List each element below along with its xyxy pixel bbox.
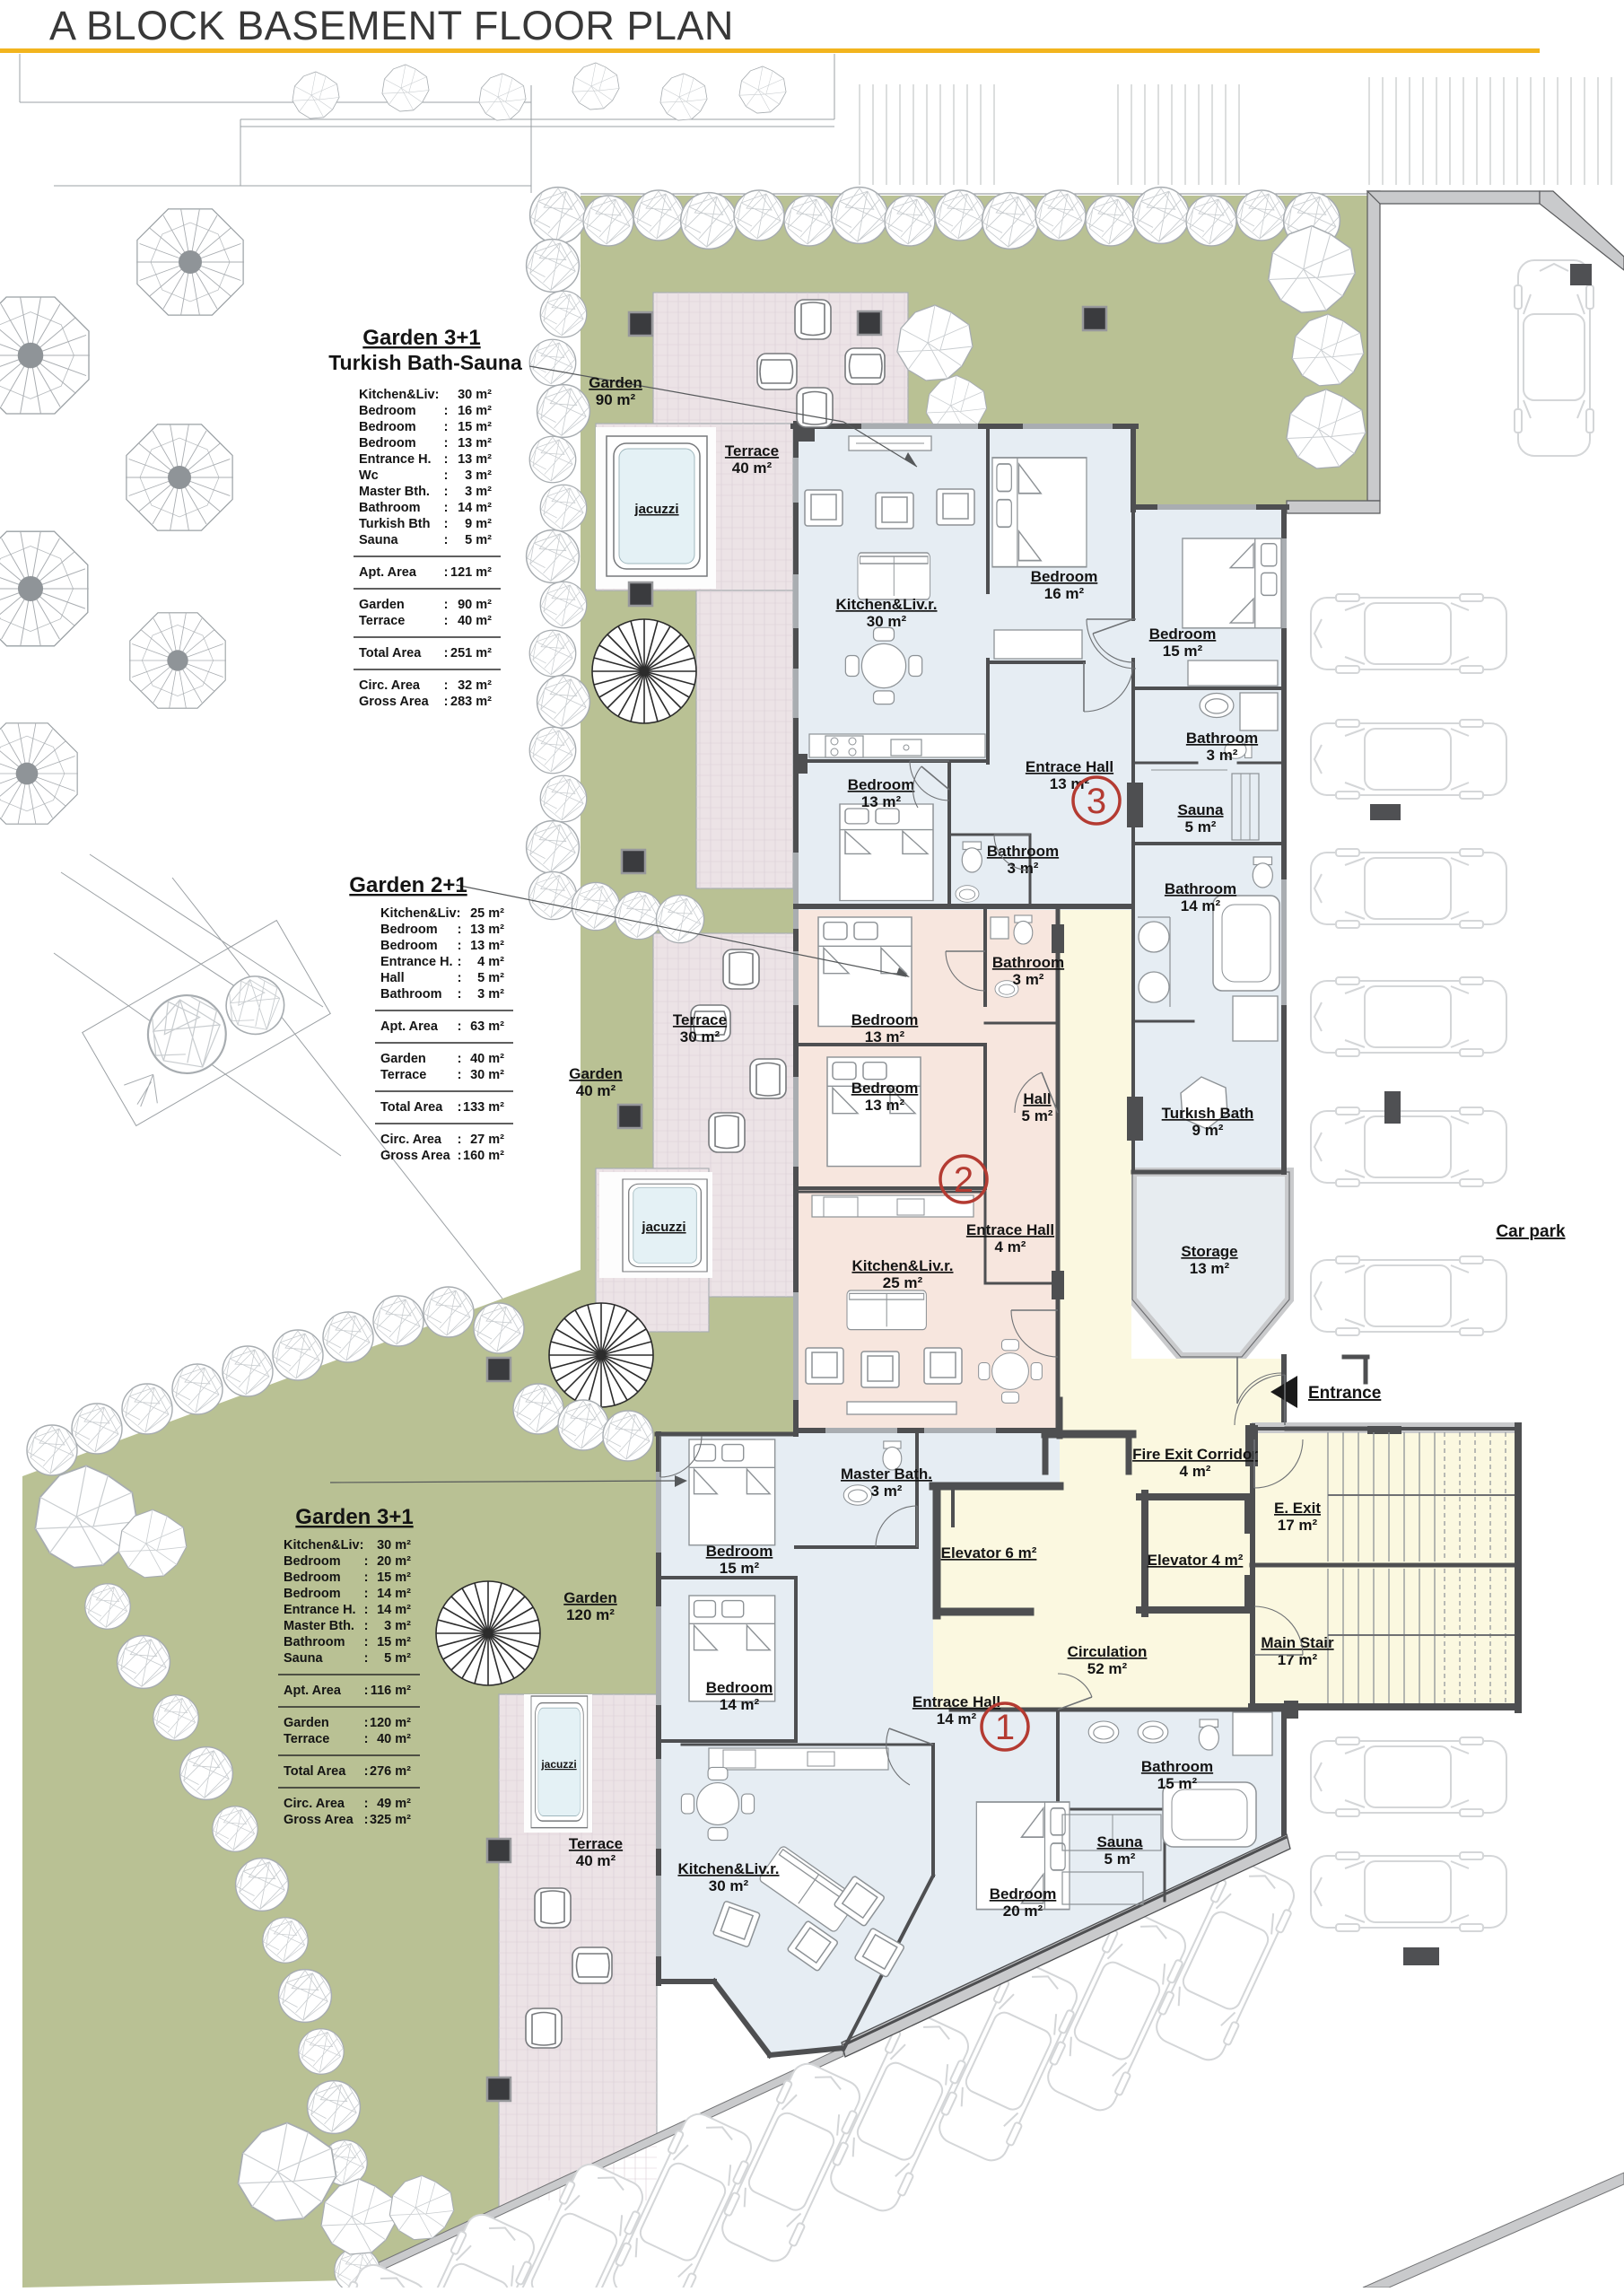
svg-text:Bathroom: Bathroom <box>380 987 441 1002</box>
svg-text::: : <box>364 1635 369 1649</box>
svg-text::: : <box>458 1052 462 1066</box>
svg-text:Bedroom: Bedroom <box>380 939 438 953</box>
svg-text:Garden 3+1: Garden 3+1 <box>295 1505 413 1529</box>
svg-text::: : <box>444 436 449 451</box>
svg-text:5 m²: 5 m² <box>477 971 504 985</box>
svg-text:Garden: Garden <box>563 1589 617 1606</box>
svg-text::: : <box>444 501 449 515</box>
svg-text:Bathroom: Bathroom <box>284 1635 345 1649</box>
svg-text:Bathroom: Bathroom <box>359 501 420 515</box>
svg-text:17 m²: 17 m² <box>1278 1651 1318 1668</box>
svg-text:32 m²: 32 m² <box>458 678 492 693</box>
svg-text:Entrance H.: Entrance H. <box>359 452 432 467</box>
svg-text:Bedroom: Bedroom <box>284 1587 341 1601</box>
svg-text:Main Stair: Main Stair <box>1261 1634 1334 1651</box>
svg-text:A BLOCK BASEMENT FLOOR PLAN: A BLOCK BASEMENT FLOOR PLAN <box>49 3 734 48</box>
svg-text::: : <box>364 1764 369 1779</box>
svg-text::: : <box>364 1570 369 1585</box>
svg-text:3 m²: 3 m² <box>384 1619 411 1633</box>
svg-text:jacuzzi: jacuzzi <box>641 1220 685 1235</box>
svg-text:Kitchen&Liv.r.: Kitchen&Liv.r. <box>851 1257 953 1274</box>
svg-text:Terrace: Terrace <box>673 1011 727 1028</box>
svg-text:Kitchen&Liv.r.: Kitchen&Liv.r. <box>835 596 937 613</box>
svg-text::: : <box>364 1797 369 1811</box>
svg-text:15 m²: 15 m² <box>377 1635 411 1649</box>
svg-text:283 m²: 283 m² <box>450 695 492 709</box>
svg-text:13 m²: 13 m² <box>1050 775 1090 792</box>
svg-text:Total Area: Total Area <box>359 646 422 660</box>
svg-text:20 m²: 20 m² <box>1003 1903 1043 1920</box>
svg-text:5 m²: 5 m² <box>465 533 492 547</box>
svg-text:3 m²: 3 m² <box>477 987 504 1002</box>
svg-text:Terrace: Terrace <box>725 442 779 459</box>
svg-text:Bedroom: Bedroom <box>284 1570 341 1585</box>
svg-text:3 m²: 3 m² <box>1008 860 1039 877</box>
svg-text:30 m²: 30 m² <box>470 1068 504 1082</box>
svg-text:14 m²: 14 m² <box>720 1696 760 1713</box>
svg-text:13 m²: 13 m² <box>470 939 504 953</box>
svg-text::: : <box>444 485 449 499</box>
svg-text:4 m²: 4 m² <box>477 955 504 969</box>
svg-text:E. Exit: E. Exit <box>1274 1500 1321 1517</box>
svg-text:160 m²: 160 m² <box>463 1149 504 1163</box>
svg-text:15 m²: 15 m² <box>377 1570 411 1585</box>
svg-text:40 m²: 40 m² <box>458 614 492 628</box>
svg-text:63 m²: 63 m² <box>470 1019 504 1034</box>
svg-text:Sauna: Sauna <box>284 1651 323 1666</box>
svg-text:Kitchen&Liv:: Kitchen&Liv: <box>380 906 460 921</box>
svg-text:Terrace: Terrace <box>359 614 405 628</box>
svg-text::: : <box>364 1651 369 1666</box>
svg-text:Gross Area: Gross Area <box>380 1149 451 1163</box>
svg-text:3: 3 <box>1087 782 1106 821</box>
svg-text:276 m²: 276 m² <box>370 1764 411 1779</box>
svg-text:Terrace: Terrace <box>284 1732 329 1746</box>
svg-text:13 m²: 13 m² <box>861 793 902 810</box>
svg-text:13 m²: 13 m² <box>470 923 504 937</box>
svg-text:116 m²: 116 m² <box>371 1684 411 1698</box>
svg-text:Garden: Garden <box>284 1716 329 1730</box>
svg-text:Bathroom: Bathroom <box>992 954 1064 971</box>
svg-text:Turkısh Bath: Turkısh Bath <box>1162 1105 1254 1122</box>
svg-text:49 m²: 49 m² <box>377 1797 411 1811</box>
svg-text:3 m²: 3 m² <box>465 468 492 483</box>
svg-text:14 m²: 14 m² <box>937 1710 977 1728</box>
svg-text:16 m²: 16 m² <box>1044 585 1085 602</box>
svg-text:Apt. Area: Apt. Area <box>359 565 417 580</box>
svg-text:Bathroom: Bathroom <box>1165 880 1236 897</box>
svg-text:Bathroom: Bathroom <box>1141 1758 1213 1775</box>
svg-text:Total Area: Total Area <box>380 1100 443 1115</box>
svg-text::: : <box>458 1100 462 1115</box>
svg-text:Hall: Hall <box>1023 1090 1051 1107</box>
svg-text:Bedroom: Bedroom <box>990 1885 1057 1903</box>
svg-text:40 m²: 40 m² <box>576 1082 616 1099</box>
svg-text:325 m²: 325 m² <box>370 1813 411 1827</box>
svg-text:Garden: Garden <box>359 598 405 612</box>
svg-text:15 m²: 15 m² <box>720 1560 760 1577</box>
svg-text:17 m²: 17 m² <box>1278 1517 1318 1534</box>
svg-text:20 m²: 20 m² <box>377 1554 411 1569</box>
svg-text:Sauna: Sauna <box>359 533 398 547</box>
svg-text:120 m²: 120 m² <box>370 1716 411 1730</box>
svg-text:Elevator 6 m²: Elevator 6 m² <box>941 1544 1037 1562</box>
svg-text:9 m²: 9 m² <box>465 517 492 531</box>
svg-text:121 m²: 121 m² <box>450 565 492 580</box>
svg-text::: : <box>458 1068 462 1082</box>
svg-text::: : <box>364 1587 369 1601</box>
svg-text:15 m²: 15 m² <box>1157 1775 1198 1792</box>
svg-text::: : <box>444 695 449 709</box>
svg-text:27 m²: 27 m² <box>470 1133 504 1147</box>
svg-text:Terrace: Terrace <box>380 1068 426 1082</box>
svg-text:Bedroom: Bedroom <box>1031 568 1098 585</box>
svg-text:Apt. Area: Apt. Area <box>284 1684 342 1698</box>
svg-text:Gross Area: Gross Area <box>284 1813 354 1827</box>
svg-text:Gross Area: Gross Area <box>359 695 430 709</box>
svg-text:Car park: Car park <box>1496 1222 1566 1241</box>
svg-text::: : <box>364 1603 369 1617</box>
svg-text::: : <box>458 1149 462 1163</box>
svg-text:90 m²: 90 m² <box>596 391 636 408</box>
svg-text:Circulation: Circulation <box>1068 1643 1148 1660</box>
svg-text:Turkish Bath-Sauna: Turkish Bath-Sauna <box>328 351 522 374</box>
svg-text:Total Area: Total Area <box>284 1764 346 1779</box>
svg-text:15 m²: 15 m² <box>458 420 492 434</box>
svg-text:Circ. Area: Circ. Area <box>284 1797 345 1811</box>
svg-text::: : <box>444 420 449 434</box>
svg-text:Sauna: Sauna <box>1177 801 1224 818</box>
svg-text:Elevator 4 m²: Elevator 4 m² <box>1148 1552 1244 1569</box>
svg-text:Fire Exit Corridor: Fire Exit Corridor <box>1132 1446 1258 1463</box>
svg-text:Bedroom: Bedroom <box>851 1011 919 1028</box>
svg-text:251 m²: 251 m² <box>450 646 492 660</box>
svg-text:14 m²: 14 m² <box>1181 897 1221 914</box>
svg-text::: : <box>444 646 449 660</box>
svg-text::: : <box>458 987 462 1002</box>
svg-text:Bedroom: Bedroom <box>380 923 438 937</box>
svg-text:Sauna: Sauna <box>1096 1833 1143 1850</box>
svg-text:Bedroom: Bedroom <box>706 1543 773 1560</box>
svg-text:13 m²: 13 m² <box>458 436 492 451</box>
svg-text:30 m²: 30 m² <box>709 1877 749 1894</box>
svg-text:Entrance: Entrance <box>1308 1384 1381 1403</box>
svg-text:Bedroom: Bedroom <box>851 1080 919 1097</box>
svg-text:Garden: Garden <box>380 1052 426 1066</box>
svg-text:90 m²: 90 m² <box>458 598 492 612</box>
svg-text::: : <box>458 1019 462 1034</box>
svg-text::: : <box>364 1716 369 1730</box>
svg-text::: : <box>444 452 449 467</box>
svg-text:Circ. Area: Circ. Area <box>359 678 421 693</box>
svg-text:Kitchen&Liv:: Kitchen&Liv: <box>359 388 439 402</box>
svg-text:Bedroom: Bedroom <box>359 436 416 451</box>
svg-text:Storage: Storage <box>1181 1243 1237 1260</box>
svg-text:Entrace Hall: Entrace Hall <box>912 1693 1000 1710</box>
svg-text:Entrace Hall: Entrace Hall <box>1026 758 1113 775</box>
svg-text:40 m²: 40 m² <box>576 1852 616 1869</box>
svg-text::: : <box>444 468 449 483</box>
svg-text:3 m²: 3 m² <box>1207 747 1238 764</box>
svg-text:120 m²: 120 m² <box>566 1606 615 1623</box>
svg-text::: : <box>364 1684 369 1698</box>
svg-text:5 m²: 5 m² <box>1104 1850 1136 1868</box>
svg-text:40 m²: 40 m² <box>470 1052 504 1066</box>
svg-text::: : <box>364 1554 369 1569</box>
svg-text:Entrance H.: Entrance H. <box>284 1603 356 1617</box>
svg-text:40 m²: 40 m² <box>732 459 773 477</box>
svg-text:Master Bth.: Master Bth. <box>359 485 430 499</box>
svg-text:Master Bth.: Master Bth. <box>284 1619 354 1633</box>
svg-text:14 m²: 14 m² <box>377 1603 411 1617</box>
svg-text:Bedroom: Bedroom <box>706 1679 773 1696</box>
svg-text::: : <box>444 614 449 628</box>
svg-text:52 m²: 52 m² <box>1087 1660 1128 1677</box>
svg-text::: : <box>444 404 449 418</box>
svg-text:3 m²: 3 m² <box>871 1483 903 1500</box>
svg-text:Circ. Area: Circ. Area <box>380 1133 442 1147</box>
svg-text:Terrace: Terrace <box>569 1835 623 1852</box>
svg-text:133 m²: 133 m² <box>463 1100 504 1115</box>
svg-text::: : <box>444 517 449 531</box>
svg-text::: : <box>444 678 449 693</box>
svg-text:Apt. Area: Apt. Area <box>380 1019 439 1034</box>
svg-text:3 m²: 3 m² <box>1013 971 1044 988</box>
svg-text::: : <box>444 565 449 580</box>
svg-text:Kitchen&Liv.r.: Kitchen&Liv.r. <box>677 1860 779 1877</box>
svg-text:14 m²: 14 m² <box>458 501 492 515</box>
svg-text::: : <box>364 1813 369 1827</box>
svg-text:30 m²: 30 m² <box>867 613 907 630</box>
svg-text:4 m²: 4 m² <box>1180 1463 1211 1480</box>
svg-text:13 m²: 13 m² <box>458 452 492 467</box>
svg-text:13 m²: 13 m² <box>1190 1260 1230 1277</box>
svg-text:Entrace Hall: Entrace Hall <box>966 1221 1054 1238</box>
svg-text:Hall: Hall <box>380 971 405 985</box>
svg-text:Garden 2+1: Garden 2+1 <box>349 873 467 897</box>
svg-text::: : <box>458 955 462 969</box>
svg-text:4 m²: 4 m² <box>995 1238 1026 1255</box>
svg-text:Entrance H.: Entrance H. <box>380 955 453 969</box>
svg-text:Garden: Garden <box>569 1065 623 1082</box>
svg-text:5 m²: 5 m² <box>1185 818 1217 835</box>
svg-text:jacuzzi: jacuzzi <box>540 1758 576 1771</box>
svg-text:Wc: Wc <box>359 468 379 483</box>
svg-text:30 m²: 30 m² <box>458 388 492 402</box>
svg-text:Bedroom: Bedroom <box>1149 625 1217 643</box>
svg-text::: : <box>458 923 462 937</box>
svg-text:30 m²: 30 m² <box>680 1028 720 1045</box>
svg-text:9 m²: 9 m² <box>1192 1122 1224 1139</box>
svg-text:16 m²: 16 m² <box>458 404 492 418</box>
svg-text::: : <box>458 971 462 985</box>
svg-text:Garden 3+1: Garden 3+1 <box>362 326 480 350</box>
svg-text:14 m²: 14 m² <box>377 1587 411 1601</box>
svg-text:Garden: Garden <box>589 374 642 391</box>
svg-text::: : <box>458 939 462 953</box>
svg-text:25 m²: 25 m² <box>470 906 504 921</box>
svg-text:Bedroom: Bedroom <box>359 420 416 434</box>
svg-text:5 m²: 5 m² <box>1022 1107 1053 1124</box>
svg-text:Bedroom: Bedroom <box>359 404 416 418</box>
svg-text:3 m²: 3 m² <box>465 485 492 499</box>
svg-text::: : <box>444 598 449 612</box>
svg-text:25 m²: 25 m² <box>883 1274 923 1291</box>
svg-text:30 m²: 30 m² <box>377 1538 411 1553</box>
svg-text:Kitchen&Liv:: Kitchen&Liv: <box>284 1538 363 1553</box>
svg-text:Bedroom: Bedroom <box>848 776 915 793</box>
svg-text:Master Bath.: Master Bath. <box>841 1465 932 1483</box>
svg-text:jacuzzi: jacuzzi <box>633 502 678 517</box>
svg-text:13 m²: 13 m² <box>865 1028 905 1045</box>
svg-text:2: 2 <box>954 1160 974 1200</box>
svg-text::: : <box>458 1133 462 1147</box>
svg-text:Turkish Bth: Turkish Bth <box>359 517 430 531</box>
svg-text:40 m²: 40 m² <box>377 1732 411 1746</box>
svg-text::: : <box>364 1619 369 1633</box>
svg-text:1: 1 <box>995 1708 1015 1747</box>
svg-text::: : <box>364 1732 369 1746</box>
svg-text:15 m²: 15 m² <box>1163 643 1203 660</box>
svg-text:13 m²: 13 m² <box>865 1097 905 1114</box>
svg-text:5 m²: 5 m² <box>384 1651 411 1666</box>
svg-text:Bedroom: Bedroom <box>284 1554 341 1569</box>
svg-text:Bathroom: Bathroom <box>1186 730 1258 747</box>
svg-text::: : <box>444 533 449 547</box>
